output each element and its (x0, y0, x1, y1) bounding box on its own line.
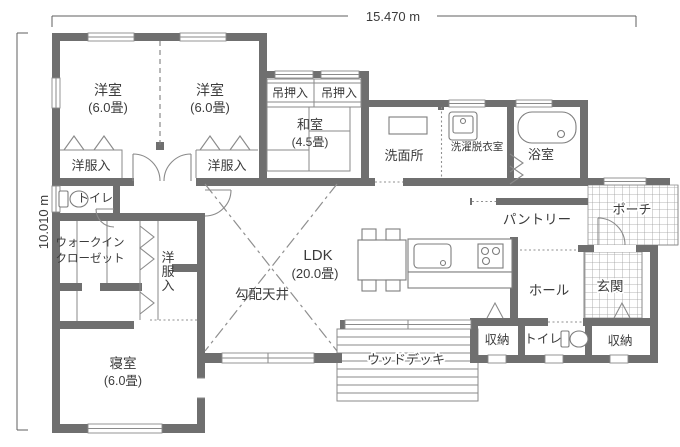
toilet-icon-2 (561, 331, 588, 347)
label-western-room-2: 洋室 (196, 82, 224, 98)
label-toilet-2: トイレ (524, 332, 562, 346)
label-pantry: パントリー (503, 212, 571, 227)
label-washroom: 洗面所 (384, 148, 423, 163)
label-closet-1: 洋服入 (71, 158, 110, 173)
label-bedroom: 寝室 (110, 355, 137, 371)
dimension-width-label: 15.470 m (366, 9, 420, 24)
label-porch: ポーチ (612, 202, 651, 217)
label-ldk-size: (20.0畳) (292, 266, 339, 281)
laundry-sink-icon (449, 112, 477, 140)
dimension-height-label: 10.010 m (36, 195, 51, 249)
label-storage-2: 収納 (607, 334, 632, 348)
label-walk-in-closet-2: クローゼット (56, 252, 125, 265)
label-closet-2: 洋服入 (207, 158, 246, 173)
label-storage-1: 収納 (484, 333, 509, 347)
floor-plan-svg: 15.470 m 10.010 m (0, 0, 680, 447)
label-western-room-2-size: (6.0畳) (190, 100, 230, 115)
bathtub-icon (518, 112, 576, 143)
label-sloped-ceiling: 勾配天井 (235, 287, 289, 302)
label-laundry-room: 洗濯脱衣室 (451, 140, 504, 153)
label-walk-in-closet-1: ウォークイン (56, 236, 125, 249)
kitchen-counter-icon (408, 239, 512, 288)
label-entrance: 玄関 (597, 278, 624, 294)
label-hanging-closet-1: 吊押入 (272, 86, 308, 100)
label-wood-deck: ウッドデッキ (367, 352, 445, 367)
dining-table-icon (358, 229, 406, 291)
label-western-room-1: 洋室 (94, 82, 122, 98)
label-bathroom: 浴室 (528, 147, 554, 162)
label-hanging-closet-2: 吊押入 (321, 86, 357, 100)
label-closet-3: 洋服入 (161, 250, 174, 293)
walk-in-closet-partitions (77, 221, 107, 321)
label-japanese-room: 和室 (297, 117, 323, 132)
label-hall: ホール (529, 283, 570, 298)
vanity-counter-icon (389, 117, 427, 134)
floor-plan-page: 15.470 m 10.010 m (0, 0, 680, 447)
label-bedroom-size: (6.0畳) (104, 374, 142, 388)
label-toilet-1: トイレ (77, 191, 113, 205)
label-western-room-1-size: (6.0畳) (88, 100, 128, 115)
label-japanese-room-size: (4.5畳) (292, 135, 329, 149)
label-ldk: LDK (303, 247, 332, 264)
